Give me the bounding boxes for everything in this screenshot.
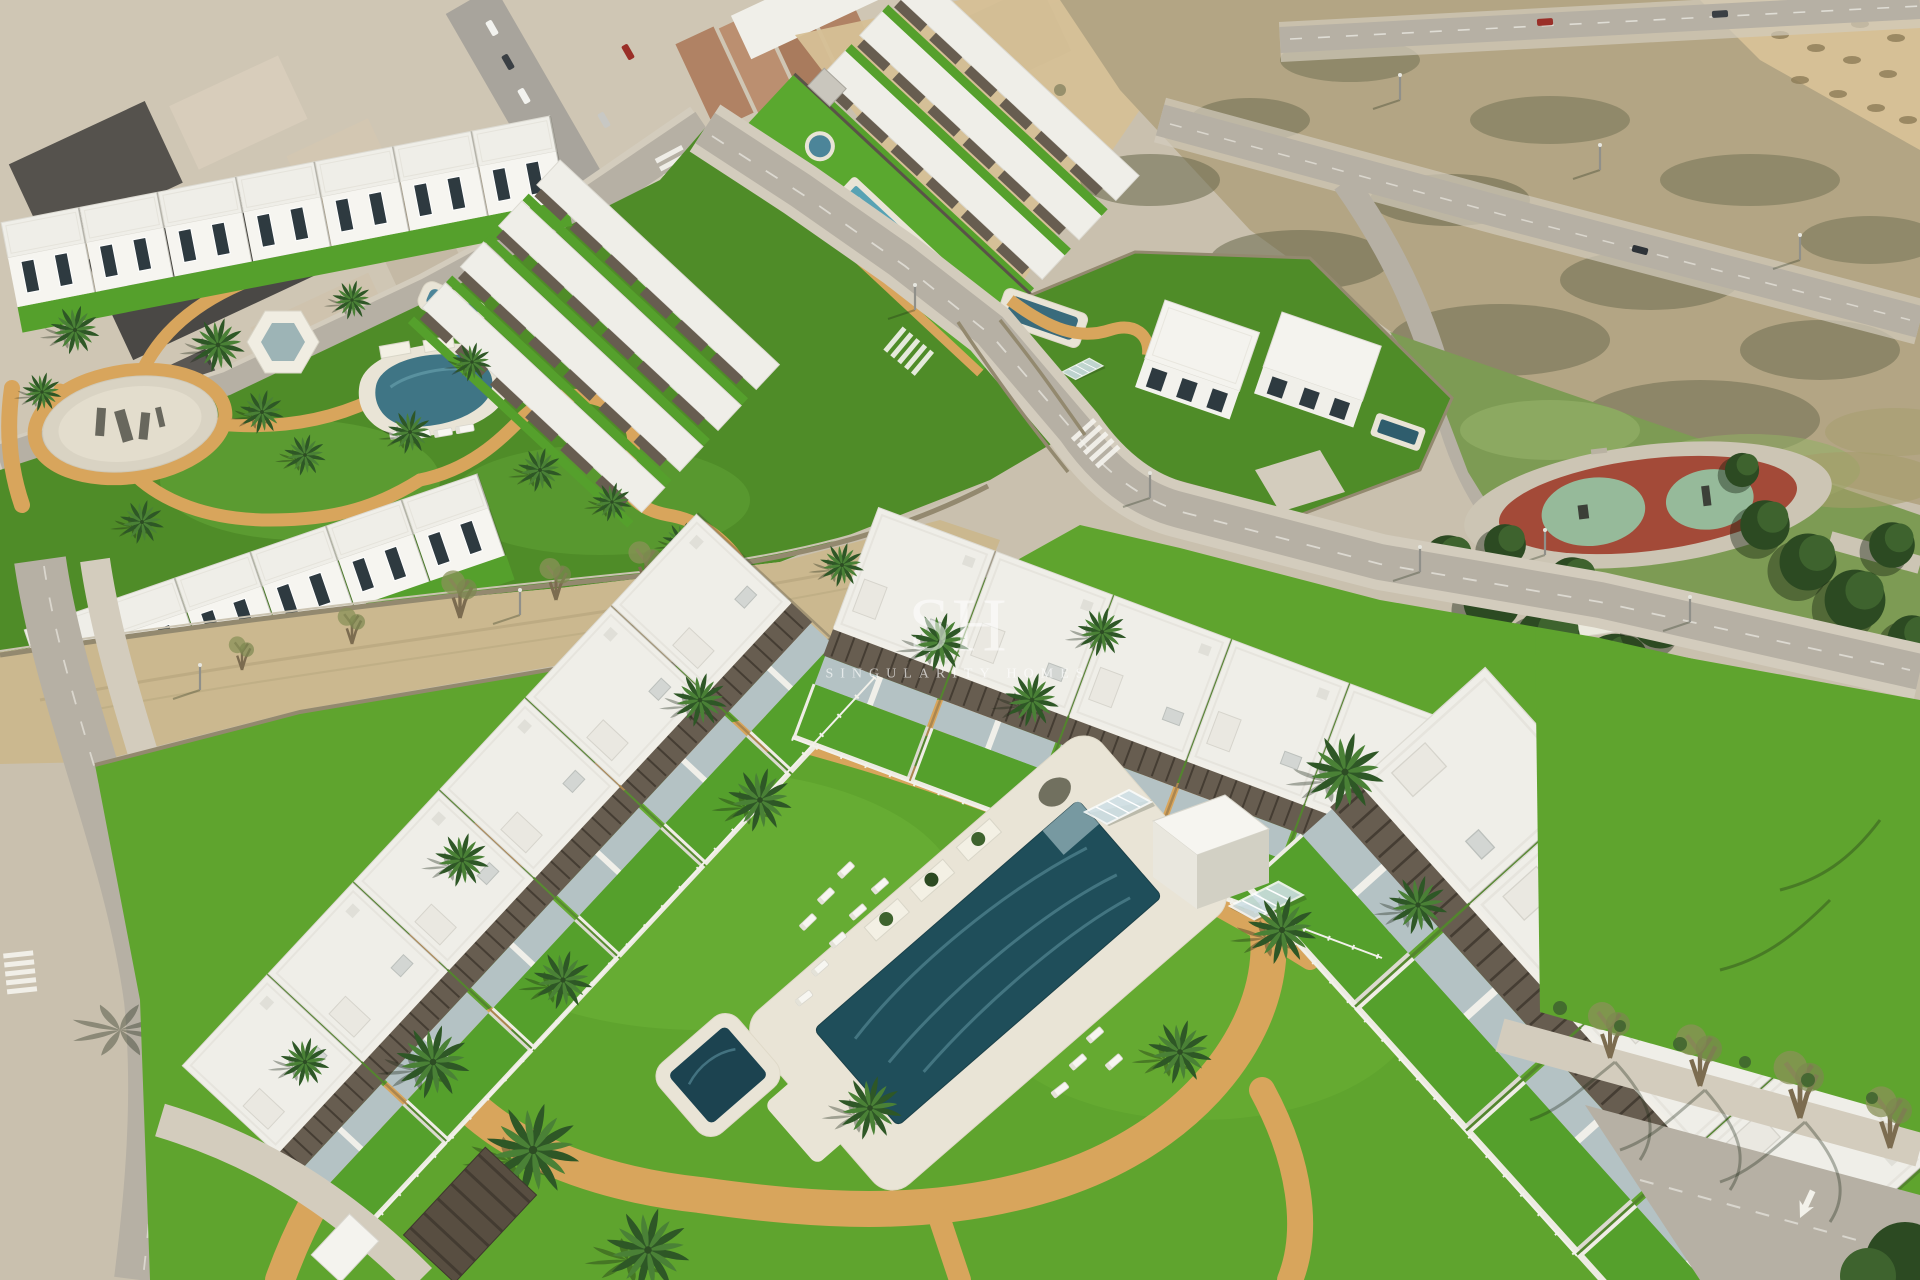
play-equipment <box>1578 504 1590 519</box>
car <box>1712 10 1728 18</box>
render-canvas <box>0 0 1920 1280</box>
red-car <box>1537 18 1553 26</box>
aerial-render: SH SINGULARITY HOMES <box>0 0 1920 1280</box>
